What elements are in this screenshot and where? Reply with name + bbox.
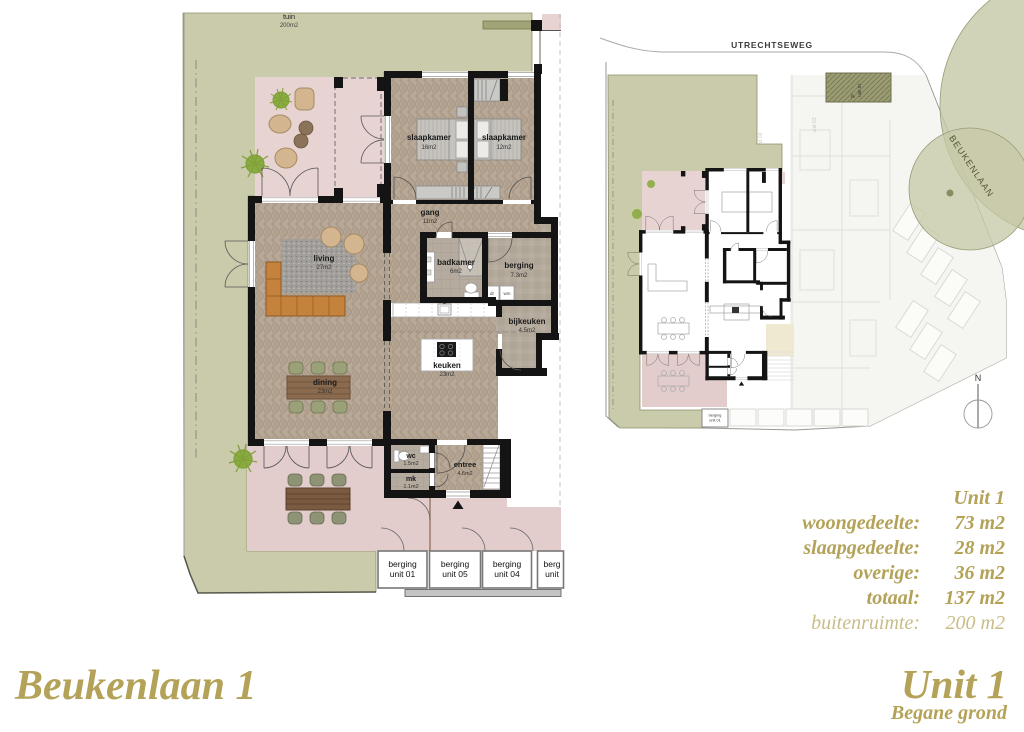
svg-text:137 m2: 137 m2 <box>944 587 1005 609</box>
svg-text:27m2: 27m2 <box>316 265 332 271</box>
svg-text:1.5m2: 1.5m2 <box>403 461 418 467</box>
svg-text:200m2: 200m2 <box>280 23 299 29</box>
svg-text:berging: berging <box>441 559 470 569</box>
svg-text:gang: gang <box>420 208 439 217</box>
svg-text:Begane grond: Begane grond <box>890 702 1008 724</box>
svg-text:keuken: keuken <box>433 361 461 370</box>
svg-text:N: N <box>975 373 982 383</box>
svg-text:mk: mk <box>406 476 416 483</box>
svg-text:totaal:: totaal: <box>867 587 920 609</box>
svg-text:23m2: 23m2 <box>439 372 455 378</box>
svg-text:4.6m2: 4.6m2 <box>457 471 472 477</box>
svg-text:unit 01: unit 01 <box>857 83 862 97</box>
svg-text:slaapgedeelte:: slaapgedeelte: <box>802 537 920 559</box>
svg-text:28 m2: 28 m2 <box>953 537 1005 559</box>
svg-text:woongedeelte:: woongedeelte: <box>802 512 920 534</box>
svg-text:dining: dining <box>313 378 337 387</box>
svg-text:UTRECHTSEWEG: UTRECHTSEWEG <box>731 40 813 50</box>
svg-text:unit 04: unit 04 <box>494 569 520 579</box>
svg-text:bijkeuken: bijkeuken <box>509 317 546 326</box>
svg-text:200 m2: 200 m2 <box>946 612 1005 634</box>
svg-text:buitenruimte:: buitenruimte: <box>811 612 920 634</box>
svg-text:berging: berging <box>388 559 417 569</box>
svg-text:unit 01: unit 01 <box>390 569 416 579</box>
svg-text:12m2: 12m2 <box>496 145 512 151</box>
svg-text:23m2: 23m2 <box>317 389 333 395</box>
svg-text:11m2: 11m2 <box>423 219 438 225</box>
svg-text:berging: berging <box>493 559 522 569</box>
svg-text:Beukenlaan 1: Beukenlaan 1 <box>14 663 257 709</box>
svg-text:wm: wm <box>504 291 511 296</box>
svg-text:berging: berging <box>709 414 722 418</box>
svg-text:unit 03: unit 03 <box>812 117 818 132</box>
svg-text:berg: berg <box>543 559 560 569</box>
svg-text:tuin: tuin <box>283 12 295 21</box>
svg-text:73 m2: 73 m2 <box>954 512 1005 534</box>
svg-text:6m2: 6m2 <box>450 269 462 275</box>
svg-text:unit 05: unit 05 <box>442 569 468 579</box>
svg-text:overige:: overige: <box>853 562 920 584</box>
svg-text:Unit 1: Unit 1 <box>901 661 1007 707</box>
svg-text:unit: unit <box>545 569 559 579</box>
svg-text:entree: entree <box>454 460 477 469</box>
svg-text:wc: wc <box>405 453 415 460</box>
svg-text:7.3m2: 7.3m2 <box>511 273 528 279</box>
svg-text:slaapkamer: slaapkamer <box>482 133 526 142</box>
svg-text:36 m2: 36 m2 <box>953 562 1005 584</box>
svg-text:slaapkamer: slaapkamer <box>407 133 451 142</box>
svg-text:Unit 1: Unit 1 <box>953 487 1005 509</box>
svg-text:berging: berging <box>504 261 533 270</box>
svg-text:living: living <box>314 254 335 263</box>
svg-text:1.1m2: 1.1m2 <box>403 484 418 490</box>
svg-text:unit 01: unit 01 <box>709 419 720 423</box>
svg-text:16m2: 16m2 <box>421 145 437 151</box>
svg-text:badkamer: badkamer <box>437 258 475 267</box>
svg-text:dr: dr <box>490 291 495 296</box>
svg-text:4.5m2: 4.5m2 <box>519 328 536 334</box>
